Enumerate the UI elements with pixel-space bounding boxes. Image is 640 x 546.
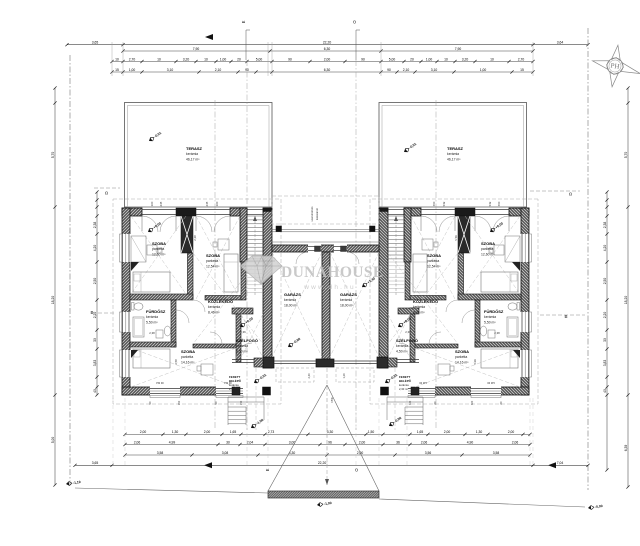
svg-text:7,90: 7,90 [455,47,462,51]
svg-text:SZOBA: SZOBA [206,253,220,258]
svg-text:kerámia: kerámia [146,315,158,319]
svg-text:150: 150 [239,400,243,405]
svg-text:1,00: 1,00 [220,57,227,61]
svg-text:SZÉLFOGÓ: SZÉLFOGÓ [236,338,258,343]
svg-text:22,20: 22,20 [323,41,332,45]
svg-text:245: 245 [159,201,163,206]
svg-text:3,10: 3,10 [167,68,174,72]
svg-text:2,00: 2,00 [359,440,366,444]
svg-text:5,50 m²: 5,50 m² [484,320,496,324]
svg-text:3,30: 3,30 [327,430,334,434]
svg-text:22,20: 22,20 [318,461,327,465]
svg-text:15%: 15% [330,397,334,403]
svg-text:2,70: 2,70 [129,57,136,61]
svg-text:8,46 m²: 8,46 m² [413,310,425,314]
svg-text:5,70: 5,70 [51,152,55,159]
svg-text:3,83: 3,83 [93,360,97,367]
svg-text:2,38: 2,38 [454,235,458,241]
svg-text:40: 40 [93,389,97,393]
svg-text:30: 30 [93,338,97,342]
svg-text:SZÉLFOGÓ: SZÉLFOGÓ [396,338,418,343]
svg-text:PM 90: PM 90 [419,381,427,385]
svg-text:3,58: 3,58 [493,451,500,455]
svg-text:7,04: 7,04 [557,461,564,465]
svg-text:parketta: parketta [455,355,467,359]
svg-text:4,50 m²: 4,50 m² [396,349,408,353]
svg-text:kerámia: kerámia [413,305,425,309]
svg-text:parketta: parketta [181,355,193,359]
svg-text:2,10: 2,10 [403,68,410,72]
svg-text:1,00: 1,00 [480,68,487,72]
svg-text:12,54 m²: 12,54 m² [206,264,220,268]
svg-text:6,30: 6,30 [324,47,331,51]
svg-text:150: 150 [408,400,412,405]
svg-text:2,38: 2,38 [149,331,155,335]
svg-text:2,00: 2,00 [508,430,515,434]
svg-text:245: 245 [205,201,209,206]
svg-text:40: 40 [603,389,607,393]
svg-text:kerámia: kerámia [284,298,296,302]
svg-text:160: 160 [215,201,219,206]
svg-text:2,50: 2,50 [603,278,607,285]
svg-text:2,70: 2,70 [518,57,525,61]
svg-text:kerámia: kerámia [229,383,239,387]
svg-text:10: 10 [490,57,494,61]
svg-text:B: B [90,310,93,315]
svg-text:1,50: 1,50 [368,430,375,434]
svg-text:kerámia: kerámia [208,305,220,309]
svg-text:3,08: 3,08 [222,451,229,455]
svg-text:BELÉPŐ: BELÉPŐ [399,378,412,383]
svg-text:18,20: 18,20 [624,296,628,305]
svg-text:10: 10 [157,57,161,61]
svg-text:2,38: 2,38 [603,222,607,229]
svg-text:2,04: 2,04 [247,440,254,444]
svg-text:3,65: 3,65 [92,461,99,465]
svg-text:E: E [265,468,270,471]
svg-text:3,58: 3,58 [473,359,477,365]
svg-text:3,20: 3,20 [183,57,190,61]
svg-text:2,00: 2,00 [204,430,211,434]
svg-text:parketta: parketta [206,259,218,263]
svg-text:10: 10 [204,57,208,61]
svg-text:kerámia: kerámia [236,344,248,348]
svg-text:3,65: 3,65 [92,41,99,45]
svg-text:BELÉPŐ: BELÉPŐ [229,378,242,383]
svg-text:90: 90 [361,57,365,61]
svg-text:kukatároló: kukatároló [315,207,319,220]
svg-text:parketta: parketta [152,247,164,251]
svg-text:szeméttároló: szeméttároló [310,206,314,221]
svg-text:2,06: 2,06 [512,440,519,444]
svg-text:18,00 m²: 18,00 m² [284,303,298,307]
svg-text:PM 90: PM 90 [156,381,164,385]
svg-text:46,17 m²: 46,17 m² [186,157,200,161]
svg-text:1,30: 1,30 [476,430,483,434]
svg-text:14,16 m²: 14,16 m² [181,360,195,364]
svg-text:2,38: 2,38 [93,222,97,229]
svg-text:90: 90 [288,57,292,61]
svg-text:36: 36 [396,440,400,444]
svg-text:150: 150 [177,400,181,405]
svg-text:3,58: 3,58 [157,451,164,455]
svg-text:KÖZLEKEDŐ: KÖZLEKEDŐ [413,299,438,304]
svg-text:12,54 m²: 12,54 m² [427,264,441,268]
svg-text:18,00 m²: 18,00 m² [340,303,354,307]
svg-text:1,29: 1,29 [342,373,346,379]
svg-text:5,00: 5,00 [256,57,263,61]
svg-text:2,00: 2,00 [444,430,451,434]
svg-text:GARÁZS: GARÁZS [340,292,357,297]
svg-text:SZOBA: SZOBA [427,253,441,258]
svg-text:245: 245 [488,201,492,206]
svg-text:kerámia: kerámia [484,315,496,319]
svg-text:2,36: 2,36 [405,330,411,334]
svg-text:15: 15 [520,68,524,72]
svg-text:kerámia: kerámia [447,152,459,156]
svg-text:20: 20 [237,57,241,61]
svg-text:2,00: 2,00 [140,430,147,434]
svg-text:2,73: 2,73 [268,430,275,434]
svg-text:SZOBA: SZOBA [481,241,495,246]
svg-text:PM 90: PM 90 [487,381,495,385]
svg-text:160: 160 [432,201,436,206]
svg-text:4,20: 4,20 [603,245,607,252]
svg-text:3,58: 3,58 [174,359,178,365]
svg-text:10: 10 [444,57,448,61]
svg-text:1,65: 1,65 [417,430,424,434]
svg-text:2,30 m²: 2,30 m² [229,387,238,391]
svg-text:KÖZLEKEDŐ: KÖZLEKEDŐ [208,299,233,304]
svg-text:kerámia: kerámia [399,383,409,387]
svg-text:1,30: 1,30 [172,430,179,434]
svg-text:5,50 m²: 5,50 m² [146,320,158,324]
svg-text:15: 15 [115,68,119,72]
svg-text:8,46 m²: 8,46 m² [208,310,220,314]
svg-text:4,99: 4,99 [169,440,176,444]
svg-text:2,30 m²: 2,30 m² [399,387,408,391]
svg-text:SZOBA: SZOBA [181,349,195,354]
svg-text:SZOBA: SZOBA [152,241,166,246]
svg-text:12,60 m²: 12,60 m² [481,252,495,256]
svg-text:2,06: 2,06 [134,440,141,444]
svg-text:20: 20 [410,57,414,61]
svg-text:2,20: 2,20 [603,312,607,319]
svg-text:46,17 m²: 46,17 m² [447,157,461,161]
svg-text:TERASZ: TERASZ [186,146,203,151]
svg-text:160: 160 [497,201,501,206]
svg-text:PH: PH [610,62,620,71]
svg-text:FÜRDŐSZ: FÜRDŐSZ [484,309,504,314]
svg-text:14,16 m²: 14,16 m² [455,360,469,364]
svg-text:kerámia: kerámia [396,344,408,348]
svg-text:5,00: 5,00 [389,57,396,61]
svg-text:30: 30 [603,338,607,342]
svg-text:5,70: 5,70 [624,152,628,159]
svg-text:3,20: 3,20 [462,57,469,61]
svg-text:E: E [241,20,246,23]
svg-text:FÜRDŐSZ: FÜRDŐSZ [146,309,166,314]
svg-text:160: 160 [150,201,154,206]
svg-text:30: 30 [226,440,230,444]
svg-text:4,20: 4,20 [93,245,97,252]
svg-text:DUNAHOUSE: DUNAHOUSE [281,264,384,281]
svg-text:90: 90 [387,68,391,72]
svg-text:2,40: 2,40 [307,373,311,379]
svg-text:GARÁZS: GARÁZS [284,292,301,297]
svg-text:SZOBA: SZOBA [455,349,469,354]
svg-text:4,50 m²: 4,50 m² [236,349,248,353]
svg-text:B: B [564,314,567,319]
svg-text:2,10: 2,10 [215,68,222,72]
svg-text:12,60 m²: 12,60 m² [152,252,166,256]
svg-text:10: 10 [115,57,119,61]
svg-text:parketta: parketta [427,259,439,263]
svg-text:7,90: 7,90 [193,47,200,51]
svg-text:6,30: 6,30 [324,68,331,72]
svg-text:www.dh.hu: www.dh.hu [303,284,356,291]
svg-text:2,06: 2,06 [421,440,428,444]
svg-text:5,00: 5,00 [51,437,55,444]
svg-text:2,38: 2,38 [494,331,500,335]
svg-text:245: 245 [442,201,446,206]
svg-text:2,50: 2,50 [93,278,97,285]
svg-text:1,00: 1,00 [426,57,433,61]
svg-text:96: 96 [328,440,332,444]
svg-text:TERASZ: TERASZ [447,146,464,151]
svg-text:2,36: 2,36 [240,330,246,334]
svg-text:kerámia: kerámia [340,298,352,302]
svg-text:4,90: 4,90 [467,440,474,444]
svg-text:3,10: 3,10 [431,68,438,72]
svg-text:1,65: 1,65 [230,430,237,434]
svg-text:18,20: 18,20 [51,296,55,305]
svg-text:3,64: 3,64 [557,41,564,45]
svg-text:2,38: 2,38 [193,235,197,241]
svg-text:3,83: 3,83 [603,360,607,367]
svg-text:3,56: 3,56 [425,451,432,455]
svg-text:1,00: 1,00 [129,68,136,72]
svg-text:2,00: 2,00 [324,57,331,61]
svg-text:kerámia: kerámia [186,152,198,156]
svg-text:parketta: parketta [481,247,493,251]
svg-text:6,39: 6,39 [624,445,628,452]
svg-text:150: 150 [470,400,474,405]
